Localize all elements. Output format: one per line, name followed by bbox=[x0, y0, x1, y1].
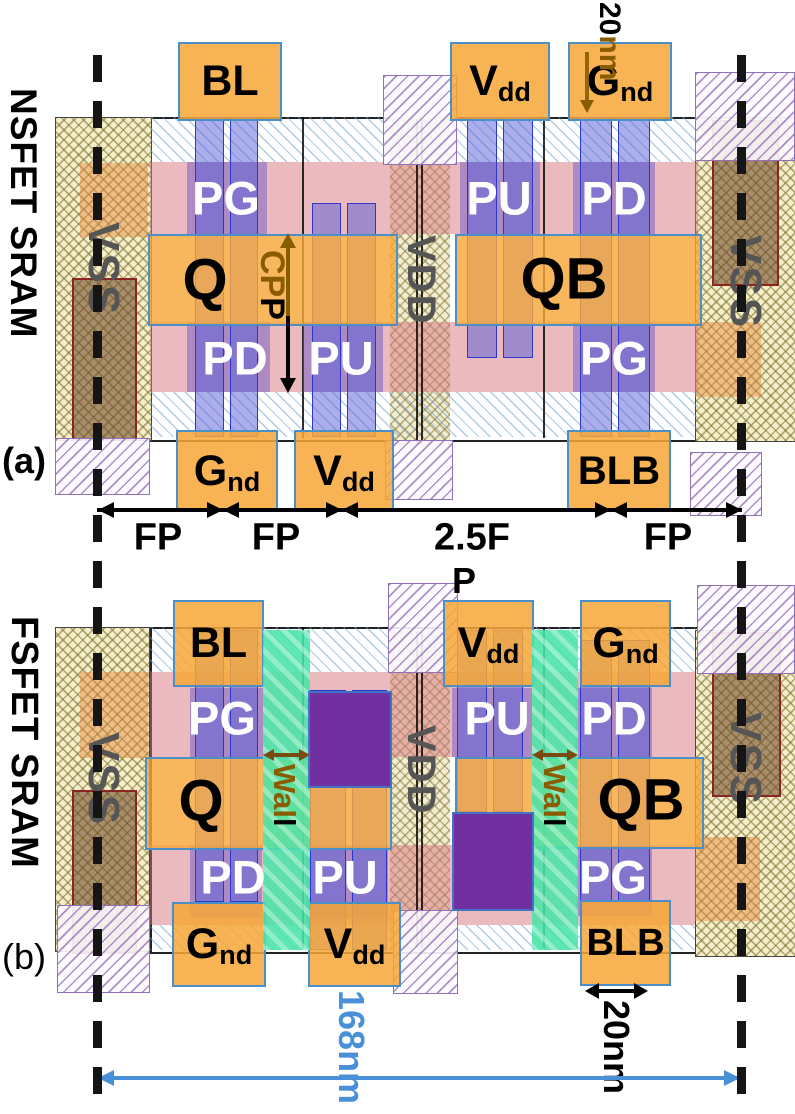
vdd-sub: dd bbox=[498, 79, 531, 106]
cell-boundary-dashed-right bbox=[737, 55, 746, 1095]
gate-width-label-b: 20nm bbox=[595, 1000, 637, 1112]
bl-label: BL bbox=[190, 622, 247, 665]
wall-label-left: Wall bbox=[266, 764, 302, 876]
dim-break-icon bbox=[223, 502, 239, 518]
gate-len-black: 20 bbox=[593, 2, 626, 35]
gnd-main: G bbox=[186, 923, 219, 966]
vdd-sub: dd bbox=[486, 641, 519, 668]
vdd-main: V bbox=[458, 622, 487, 665]
wall-arrow-left-icon bbox=[532, 749, 543, 761]
wall-tail: l bbox=[537, 818, 572, 827]
contact-blb-a: BLB bbox=[567, 430, 671, 512]
vdd-main: V bbox=[469, 60, 498, 103]
metal-hatch bbox=[55, 438, 150, 495]
label-pu-top-b: PU bbox=[464, 691, 529, 746]
vdd-sub: dd bbox=[352, 942, 385, 969]
dim-break-icon bbox=[595, 502, 611, 518]
wall-main: Wal bbox=[267, 764, 302, 818]
label-pu-bottom-a: PU bbox=[308, 331, 373, 386]
panel-b-tag: (b) bbox=[2, 936, 46, 978]
wall-arrow-right-icon bbox=[299, 749, 310, 761]
contact-vdd-top-a: Vdd bbox=[450, 42, 550, 121]
gate-length-label-a: 20nm bbox=[592, 2, 626, 102]
isolation-square-lower bbox=[452, 812, 534, 911]
wall-main: Wal bbox=[537, 764, 572, 818]
blb-label: BLB bbox=[586, 924, 664, 962]
p-annotation: P bbox=[452, 560, 476, 602]
label-pd-bottom-b: PD bbox=[200, 850, 265, 905]
cpp-brown-part: CP bbox=[253, 250, 291, 297]
contact-bl-a: BL bbox=[178, 42, 282, 121]
metal-hatch bbox=[697, 585, 795, 674]
label-qb-a: QB bbox=[521, 246, 608, 313]
cell-width-label: 168nm bbox=[330, 990, 372, 1110]
vss-label-left-b: VSS bbox=[78, 732, 128, 900]
vdd-main: V bbox=[324, 923, 353, 966]
dim-label-fp1: FP bbox=[134, 517, 183, 560]
isolation-square-upper bbox=[308, 691, 392, 788]
cpp-arrow-up-icon bbox=[280, 233, 296, 248]
vdd-sub: dd bbox=[342, 469, 375, 496]
dim-label-fp3: FP bbox=[644, 517, 693, 560]
gnd-main: G bbox=[194, 450, 227, 493]
gnd-sub: nd bbox=[227, 469, 260, 496]
metal-hatch bbox=[393, 910, 458, 994]
dim-label-2p5f: 2.5F bbox=[434, 517, 510, 560]
gnd-sub: nd bbox=[626, 641, 659, 668]
contact-vdd-bottom-b: Vdd bbox=[308, 902, 401, 987]
cell-boundary-dashed-left bbox=[93, 55, 102, 1095]
contact-vdd-top-b: Vdd bbox=[443, 600, 534, 687]
vdd-main: V bbox=[313, 450, 342, 493]
gnd-sub: nd bbox=[219, 942, 252, 969]
dim-break-icon bbox=[326, 502, 342, 518]
cpp-arrow-down-icon bbox=[280, 378, 296, 393]
label-pd-top-b: PD bbox=[581, 691, 646, 746]
sram-layout-figure: NSFET SRAM (a) VSS VSS VDD BL Vdd Gnd Gn… bbox=[0, 0, 795, 1114]
label-q-b: Q bbox=[178, 768, 223, 835]
contact-gnd-bottom-b: Gnd bbox=[172, 902, 266, 987]
bl-label: BL bbox=[201, 60, 258, 103]
label-pg-top-a: PG bbox=[192, 171, 260, 226]
dimension-line-a bbox=[97, 508, 742, 512]
label-pg-bottom-b: PG bbox=[579, 850, 647, 905]
metal-hatch bbox=[383, 75, 457, 165]
label-pd-top-a: PD bbox=[581, 171, 646, 226]
dim-break-icon bbox=[611, 502, 627, 518]
gate-length-arrow-stem bbox=[585, 52, 589, 102]
wall-tail: l bbox=[267, 818, 302, 827]
dim-break-icon bbox=[342, 502, 358, 518]
vdd-label-b: VDD bbox=[398, 725, 443, 857]
contact-blb-b: BLB bbox=[580, 900, 671, 986]
metal-hatch bbox=[385, 440, 453, 500]
label-pu-bottom-b: PU bbox=[312, 850, 377, 905]
dim-label-fp2: FP bbox=[252, 517, 301, 560]
cell-width-arrow bbox=[100, 1076, 740, 1080]
panel-a-tag: (a) bbox=[2, 440, 46, 482]
gnd-main: G bbox=[592, 622, 625, 665]
gate-length-arrow-down-icon bbox=[580, 100, 594, 113]
metal-hatch bbox=[57, 905, 150, 993]
cpp-label: CPP bbox=[252, 250, 291, 362]
contact-bl-b: BL bbox=[173, 600, 264, 687]
gate-width-arrow-left-icon bbox=[585, 983, 599, 999]
panel-a-title: NSFET SRAM bbox=[2, 88, 44, 466]
wall-label-right: Wall bbox=[536, 764, 572, 876]
cpp-black-part: P bbox=[253, 297, 291, 320]
blb-label: BLB bbox=[578, 451, 660, 491]
wall-arrow-left-icon bbox=[263, 749, 274, 761]
contact-vdd-bottom-a: Vdd bbox=[294, 430, 394, 512]
contact-gnd-top-b: Gnd bbox=[580, 600, 671, 687]
contact-gnd-bottom-a: Gnd bbox=[176, 430, 278, 512]
gate-width-arrow-right-icon bbox=[634, 983, 648, 999]
gate-len-brown: nm bbox=[593, 35, 626, 80]
vss-label-left-a: VSS bbox=[78, 222, 128, 390]
vdd-label-a: VDD bbox=[398, 235, 443, 367]
label-pu-top-a: PU bbox=[466, 171, 531, 226]
label-pg-bottom-a: PG bbox=[580, 331, 648, 386]
dim-break-icon bbox=[207, 502, 223, 518]
wall-arrow-right-icon bbox=[567, 749, 578, 761]
label-q-a: Q bbox=[182, 247, 227, 314]
label-qb-b: QB bbox=[598, 767, 685, 834]
label-pg-top-b: PG bbox=[188, 691, 256, 746]
